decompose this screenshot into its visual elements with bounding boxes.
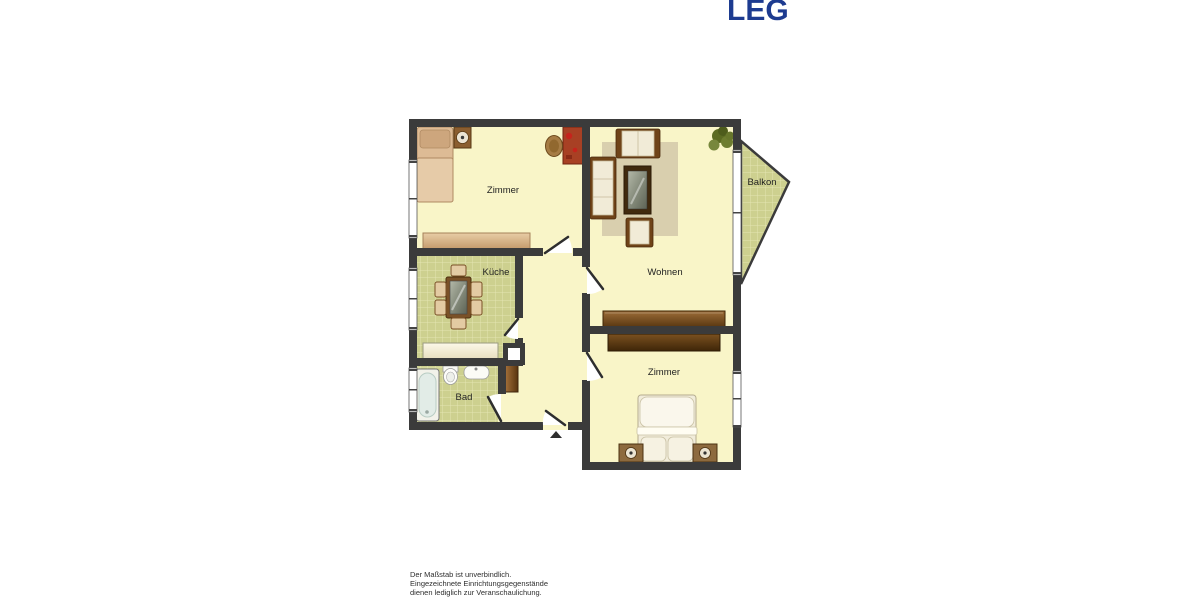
toilet-icon xyxy=(443,366,458,385)
page: LEG xyxy=(0,0,1200,600)
room-label-zimmer-top: Zimmer xyxy=(487,185,519,196)
room-label-wohnen: Wohnen xyxy=(647,267,682,278)
duct-shaft-inner xyxy=(508,348,520,360)
wardrobe-icon xyxy=(608,334,720,351)
single-bed-icon xyxy=(417,127,453,202)
coffee-table-icon xyxy=(624,166,651,214)
living-sideboard-icon xyxy=(603,311,725,328)
disclaimer-text: Der Maßstab ist unverbindlich. Eingezeic… xyxy=(410,570,548,597)
kitchen-counter-icon xyxy=(423,343,498,359)
window-icon xyxy=(733,371,741,427)
nightstand-right-icon xyxy=(693,444,717,462)
balcony xyxy=(741,141,789,284)
entrance-arrow-icon xyxy=(550,431,562,438)
sideboard-icon xyxy=(423,233,530,249)
desk-icon xyxy=(563,127,583,164)
room-label-zimmer-bottom: Zimmer xyxy=(648,367,680,378)
room-label-kueche: Küche xyxy=(483,267,510,278)
desk-chair-icon xyxy=(546,136,563,157)
window-icon xyxy=(409,160,417,238)
armchair-icon xyxy=(626,218,653,247)
loveseat-icon xyxy=(616,129,660,158)
double-bed-icon xyxy=(637,395,697,462)
disclaimer-line-2: Eingezeichnete Einrichtungsgegenstände xyxy=(410,579,548,588)
room-label-bad: Bad xyxy=(456,392,473,403)
dining-table-icon xyxy=(446,277,471,318)
floorplan: Zimmer Küche Wohnen Zimmer Bad Balkon xyxy=(0,0,1200,600)
nightstand-left-icon xyxy=(619,444,643,462)
window-icon xyxy=(409,268,417,330)
disclaimer-line-1: Der Maßstab ist unverbindlich. xyxy=(410,570,548,579)
window-icon xyxy=(409,368,417,412)
balcony-door-icon xyxy=(733,150,741,275)
nightstand-icon xyxy=(454,127,471,148)
room-label-balkon: Balkon xyxy=(747,177,776,188)
disclaimer-line-3: dienen lediglich zur Veranschaulichung. xyxy=(410,588,548,597)
bathtub-icon xyxy=(416,369,439,421)
sofa-icon xyxy=(590,157,616,219)
